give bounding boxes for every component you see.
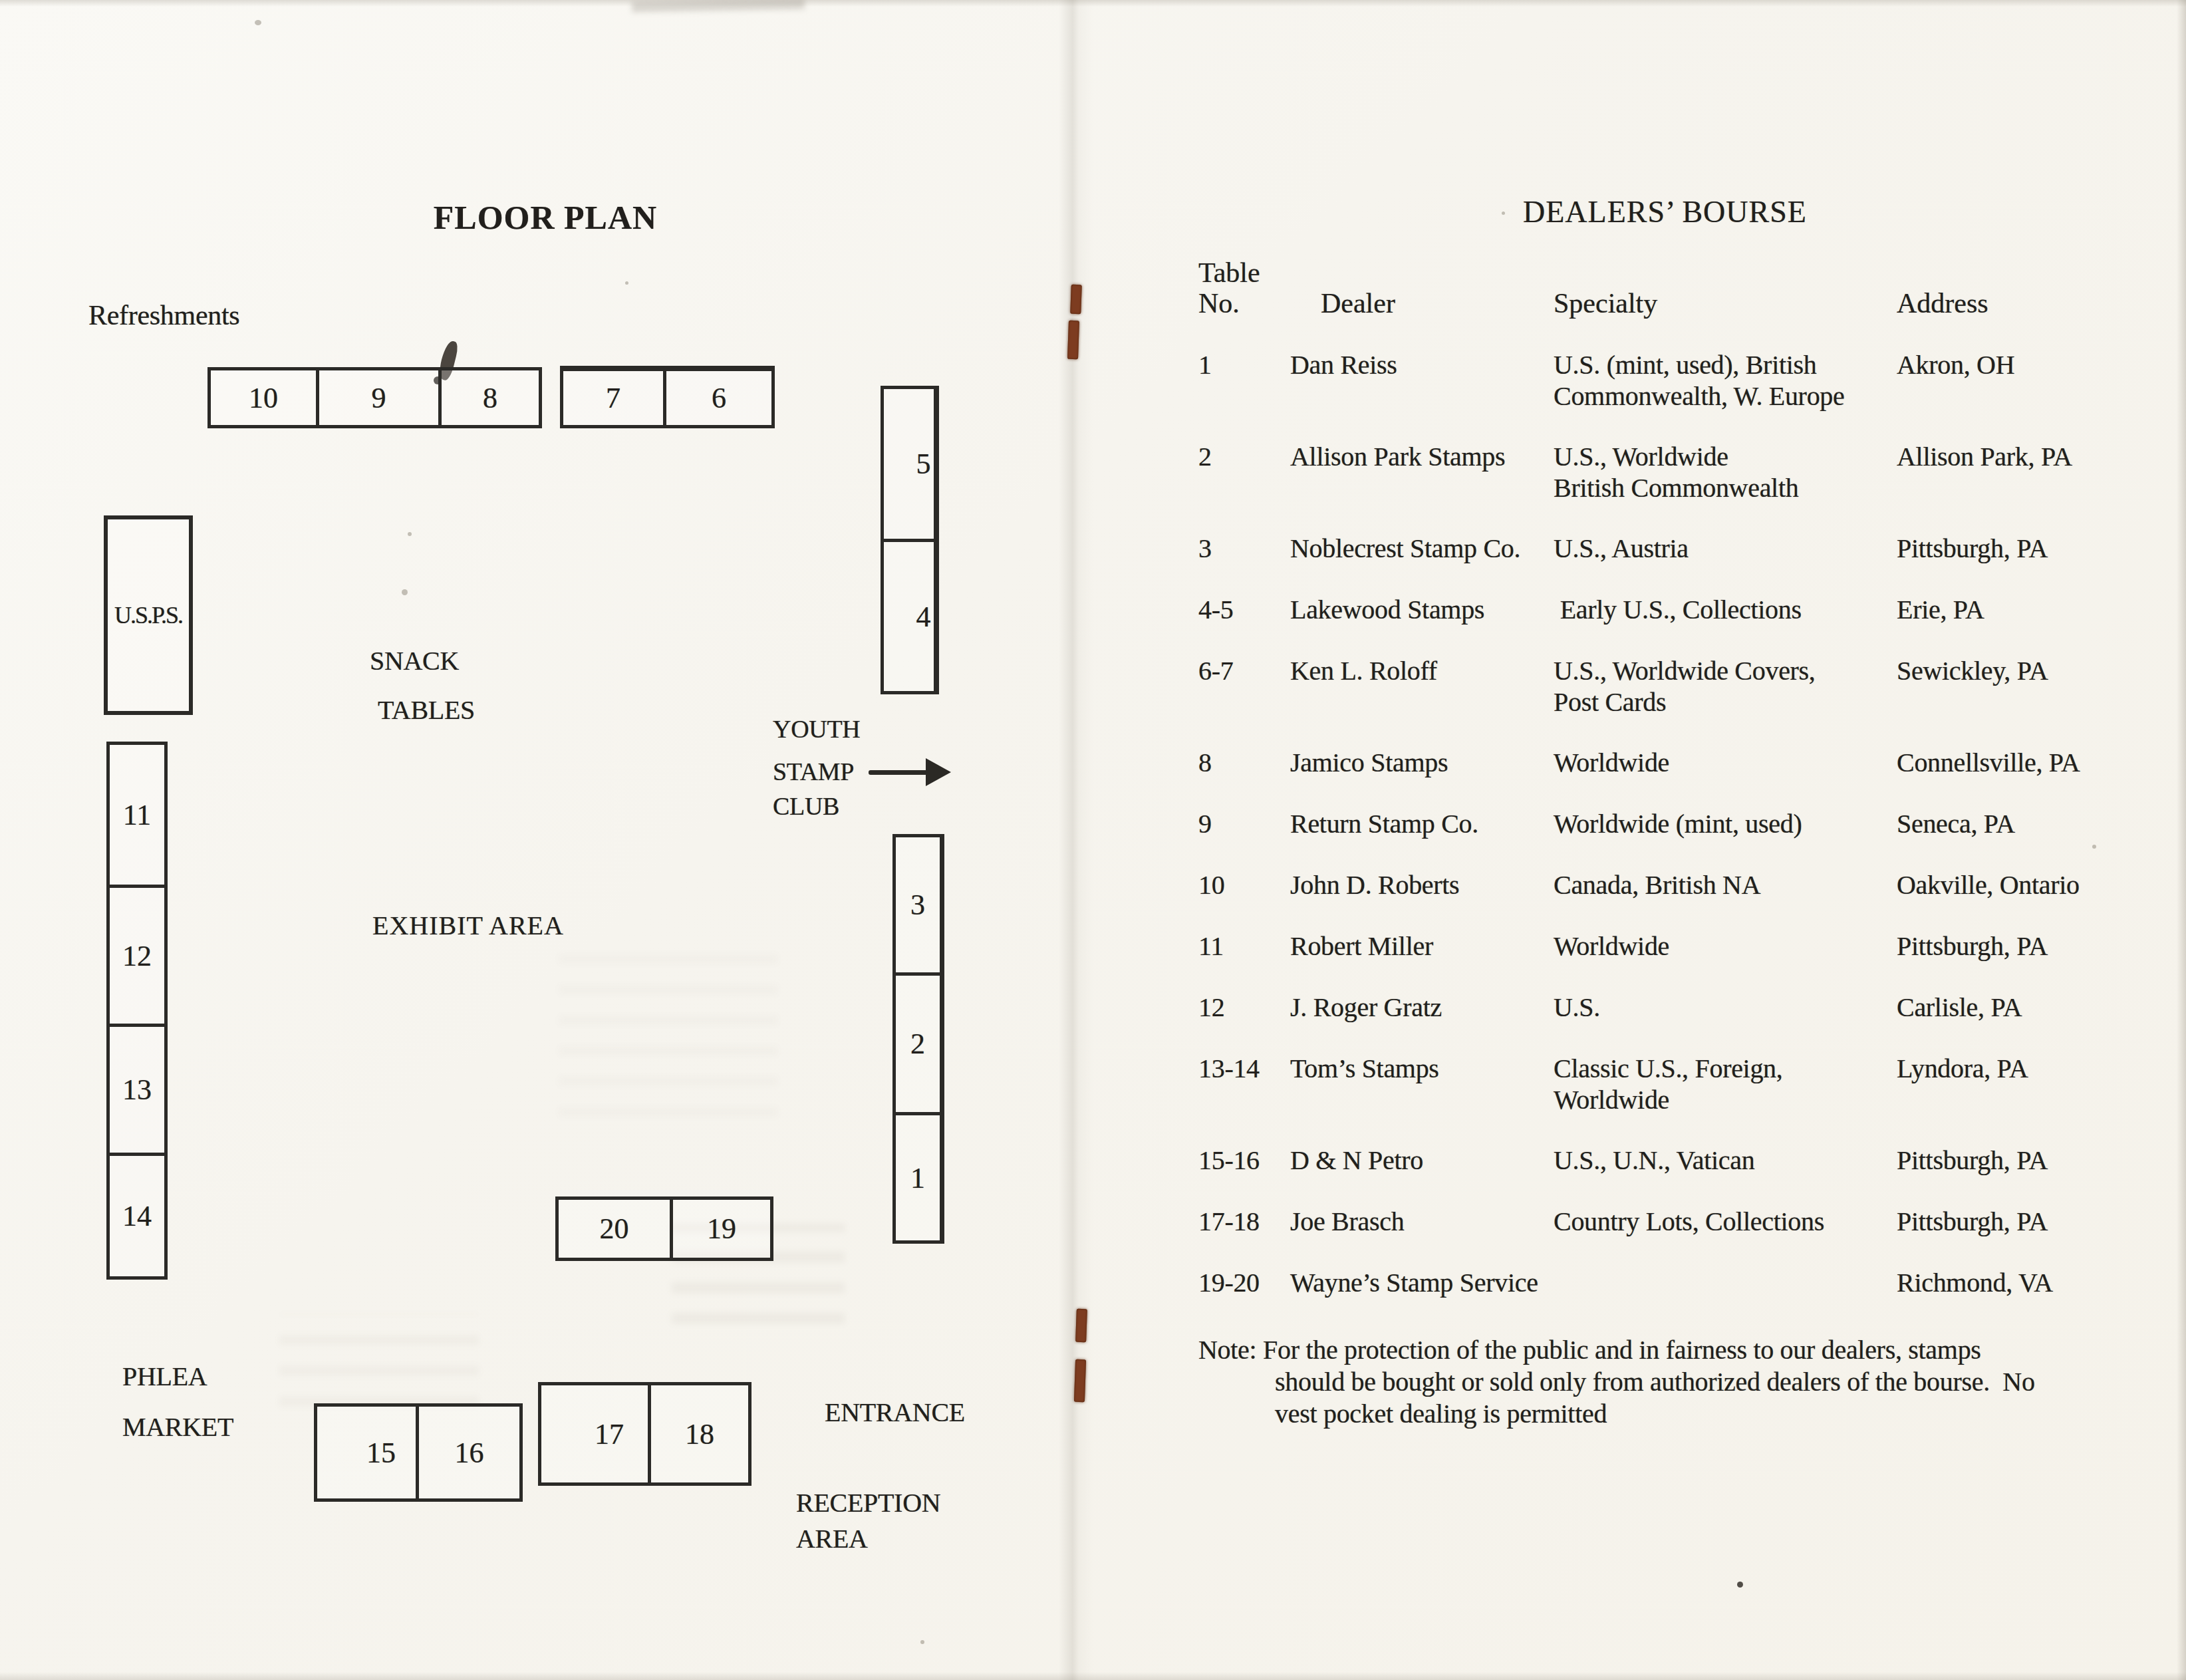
row-dealer: Tom’s Stamps [1290,1053,1439,1084]
staple-mark [1070,285,1082,315]
row-table-no: 8 [1198,747,1212,778]
row-table-no: 12 [1198,992,1224,1023]
table-group-20-19: 20 19 [555,1196,773,1261]
table-number: 3 [910,888,925,922]
column-header-address: Address [1897,287,1988,319]
floor-table-17: 17 [541,1385,648,1482]
row-table-no: 17-18 [1198,1206,1260,1237]
table-group-5-4: 5 4 [881,386,939,694]
table-number: 17 [595,1417,624,1451]
table-number: 2 [910,1027,925,1061]
dealer-row: 15-16 D & N Petro U.S., U.N., Vatican Pi… [1198,1145,2156,1211]
reception-area-label-line1: RECEPTION [796,1487,940,1518]
row-specialty-line1: Worldwide [1554,747,1669,778]
row-dealer: J. Roger Gratz [1290,992,1442,1023]
scan-speck [1737,1582,1743,1588]
row-specialty-line2: Post Cards [1554,686,1666,718]
dealer-row: 2 Allison Park Stamps U.S., Worldwide Br… [1198,441,2156,507]
dealer-row: 19-20 Wayne’s Stamp Service Richmond, VA [1198,1267,2156,1333]
phlea-market-label-line2: MARKET [122,1411,233,1443]
floor-table-10: 10 [211,370,316,425]
staple-mark [1074,1359,1086,1403]
youth-stamp-club-label-line2: STAMP [773,757,854,786]
row-address: Seneca, PA [1897,808,2015,839]
row-specialty-line1: Worldwide (mint, used) [1554,808,1802,839]
floor-table-1: 1 [896,1112,940,1240]
table-group-15-16: 15 16 [314,1403,523,1502]
table-number: 14 [122,1199,152,1233]
row-table-no: 1 [1198,349,1212,380]
floor-table-12: 12 [110,885,164,1024]
table-number: 10 [249,381,278,415]
dealer-row: 12 J. Roger Gratz U.S. Carlisle, PA [1198,992,2156,1058]
floor-table-15: 15 [317,1407,416,1498]
row-table-no: 19-20 [1198,1267,1260,1298]
row-specialty-line1: U.S. [1554,992,1600,1023]
row-address: Carlisle, PA [1897,992,2022,1023]
scan-speck [402,589,408,595]
row-specialty-line1: U.S., Worldwide Covers, [1554,655,1816,686]
row-dealer: Ken L. Roloff [1290,655,1437,686]
table-number: 12 [122,939,152,973]
floor-table-8: 8 [438,370,539,425]
column-header-table: Table [1198,257,1260,289]
floor-plan-title: FLOOR PLAN [412,198,678,237]
dealer-row: 1 Dan Reiss U.S. (mint, used), British C… [1198,349,2156,416]
floor-table-14: 14 [110,1153,164,1276]
dealer-row: 3 Noblecrest Stamp Co. U.S., Austria Pit… [1198,533,2156,599]
dealer-row: 11 Robert Miller Worldwide Pittsburgh, P… [1198,930,2156,997]
row-table-no: 6-7 [1198,655,1233,686]
table-number: 18 [685,1417,714,1451]
bourse-note-line3: vest pocket dealing is permitted [1275,1398,1607,1429]
row-dealer: Noblecrest Stamp Co. [1290,533,1520,564]
row-dealer: Robert Miller [1290,930,1433,962]
scan-speck [408,532,412,536]
row-table-no: 4-5 [1198,594,1233,625]
table-group-7-6: 7 6 [560,366,775,428]
row-address: Erie, PA [1897,594,1984,625]
staple-mark [1067,321,1079,360]
reception-area-label-line2: AREA [796,1523,868,1554]
row-address: Pittsburgh, PA [1897,1145,2048,1176]
floor-table-5: 5 [884,389,934,539]
floor-table-13: 13 [110,1024,164,1153]
column-header-specialty: Specialty [1554,287,1657,319]
row-table-no: 10 [1198,869,1224,901]
table-number: 5 [916,447,931,481]
floor-table-3: 3 [896,837,940,972]
table-number: 1 [910,1161,925,1195]
table-number: 9 [372,381,386,415]
snack-tables-label-line2: TABLES [370,694,483,726]
scan-smudge [632,0,805,12]
row-address: Akron, OH [1897,349,2014,380]
row-table-no: 13-14 [1198,1053,1260,1084]
row-dealer: Dan Reiss [1290,349,1397,380]
table-group-11-12-13-14: 11 12 13 14 [106,742,168,1280]
exhibit-area-label: EXHIBIT AREA [372,910,564,941]
row-table-no: 2 [1198,441,1212,472]
dealer-row: 4-5 Lakewood Stamps Early U.S., Collecti… [1198,594,2156,660]
floor-table-11: 11 [110,745,164,885]
table-number: 13 [122,1073,152,1107]
row-dealer: Lakewood Stamps [1290,594,1484,625]
row-dealer: Allison Park Stamps [1290,441,1505,472]
row-table-no: 3 [1198,533,1212,564]
dealer-row: 9 Return Stamp Co. Worldwide (mint, used… [1198,808,2156,875]
scan-speck [625,281,628,285]
scan-edge-shadow-right [2177,0,2186,1680]
arrow-right-icon [869,770,930,775]
row-address: Richmond, VA [1897,1267,2053,1298]
row-specialty-line1: U.S., Worldwide [1554,441,1728,472]
row-address: Sewickley, PA [1897,655,2048,686]
row-table-no: 15-16 [1198,1145,1260,1176]
row-specialty-line1: Early U.S., Collections [1554,594,1802,625]
floor-table-16: 16 [416,1407,519,1498]
table-number: 20 [600,1212,629,1246]
row-specialty-line1: U.S., Austria [1554,533,1689,564]
column-header-no: No. [1198,287,1240,319]
dealer-row: 13-14 Tom’s Stamps Classic U.S., Foreign… [1198,1053,2156,1119]
row-specialty-line2: Worldwide [1554,1084,1669,1115]
bourse-note-line1: Note: For the protection of the public a… [1198,1334,1981,1365]
floor-table-2: 2 [896,972,940,1112]
table-number: 4 [916,600,931,634]
row-table-no: 9 [1198,808,1212,839]
bleed-through-ghost [279,1314,479,1407]
table-number: 19 [707,1212,736,1246]
row-dealer: D & N Petro [1290,1145,1423,1176]
row-address: Oakville, Ontario [1897,869,2080,901]
table-number: 11 [123,798,151,832]
entrance-label: ENTRANCE [825,1397,965,1428]
page-fold-crease [1059,0,1093,1680]
row-address: Pittsburgh, PA [1897,1206,2048,1237]
row-specialty-line1: U.S. (mint, used), British [1554,349,1817,380]
table-group-10-9-8: 10 9 8 [207,367,542,428]
floor-table-9: 9 [316,370,438,425]
floor-table-19: 19 [670,1200,770,1258]
row-address: Connellsville, PA [1897,747,2080,778]
scanned-program-spread: FLOOR PLAN Refreshments 10 9 8 7 6 5 4 U… [0,0,2186,1680]
table-number: 15 [366,1436,396,1470]
row-dealer: Joe Brasch [1290,1206,1404,1237]
row-table-no: 11 [1198,930,1224,962]
usps-label: U.S.P.S. [114,601,182,629]
arrow-right-icon [926,758,951,786]
dealer-row: 10 John D. Roberts Canada, British NA Oa… [1198,869,2156,936]
row-address: Allison Park, PA [1897,441,2072,472]
table-group-3-2-1: 3 2 1 [892,834,944,1244]
floor-table-4: 4 [884,539,934,691]
dealer-row: 8 Jamico Stamps Worldwide Connellsville,… [1198,747,2156,813]
scan-speck [255,20,261,25]
scan-speck [1502,211,1505,215]
row-address: Pittsburgh, PA [1897,533,2048,564]
row-specialty-line1: Country Lots, Collections [1554,1206,1824,1237]
row-address: Pittsburgh, PA [1897,930,2048,962]
row-dealer: John D. Roberts [1290,869,1459,901]
scan-speck [920,1640,924,1644]
youth-stamp-club-label-line3: CLUB [773,791,839,821]
row-dealer: Return Stamp Co. [1290,808,1478,839]
row-specialty-line2: British Commonwealth [1554,472,1798,503]
table-number: 16 [455,1436,484,1470]
row-specialty-line2: Commonwealth, W. Europe [1554,380,1845,412]
dealers-bourse-title: DEALERS’ BOURSE [1523,194,1789,229]
row-dealer: Jamico Stamps [1290,747,1448,778]
row-specialty-line1: Worldwide [1554,930,1669,962]
table-number: 7 [606,381,620,415]
column-header-dealer: Dealer [1321,287,1395,319]
row-specialty-line1: Canada, British NA [1554,869,1760,901]
row-address: Lyndora, PA [1897,1053,2028,1084]
row-dealer: Wayne’s Stamp Service [1290,1267,1538,1298]
floor-table-18: 18 [648,1385,748,1482]
table-number: 6 [712,381,726,415]
bourse-note-line2: should be bought or sold only from autho… [1275,1366,2035,1397]
floor-table-20: 20 [559,1200,670,1258]
dealer-row: 17-18 Joe Brasch Country Lots, Collectio… [1198,1206,2156,1272]
floor-table-6: 6 [663,371,771,425]
bleed-through-ghost [559,951,778,1117]
snack-tables-label-line1: SNACK [361,645,468,676]
staple-mark [1075,1309,1087,1343]
row-specialty-line1: Classic U.S., Foreign, [1554,1053,1783,1084]
table-group-17-18: 17 18 [538,1382,751,1486]
youth-stamp-club-label-line1: YOUTH [773,714,860,744]
refreshments-label: Refreshments [88,299,239,331]
row-specialty-line1: U.S., U.N., Vatican [1554,1145,1754,1176]
usps-booth-box: U.S.P.S. [104,515,193,715]
table-number: 8 [483,381,497,415]
dealer-row: 6-7 Ken L. Roloff U.S., Worldwide Covers… [1198,655,2156,722]
phlea-market-label-line1: PHLEA [122,1361,207,1392]
floor-table-7: 7 [563,371,663,425]
